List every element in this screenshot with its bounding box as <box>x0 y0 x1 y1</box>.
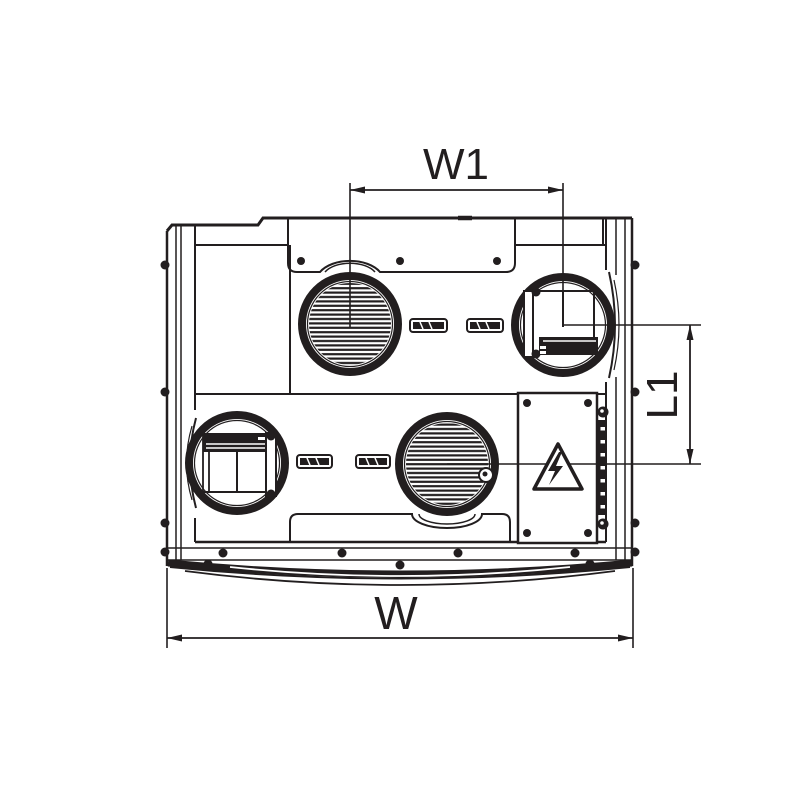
arrowhead-right <box>548 187 563 194</box>
panel-screw <box>493 257 501 265</box>
arrowhead-down <box>687 449 694 464</box>
top-vent-slots <box>410 319 503 332</box>
terminal-strip <box>598 407 609 530</box>
dimension-label-w1: W1 <box>423 140 489 189</box>
top-access-panel <box>288 218 515 272</box>
arrowhead-up <box>687 325 694 340</box>
bottom-band-screws <box>204 549 595 570</box>
panel-screw <box>396 257 404 265</box>
bottom-vent-slots <box>297 455 390 468</box>
panel-screw <box>297 257 305 265</box>
bottom-access-panel <box>290 514 510 542</box>
arrowhead-right <box>618 635 633 642</box>
dimension-w: W <box>167 568 633 648</box>
dimension-label-w: W <box>374 587 418 639</box>
ventilation-unit-drawing: W1 L1 W <box>0 0 800 800</box>
dimension-label-l1: L1 <box>638 371 687 420</box>
arrowhead-left <box>167 635 182 642</box>
bottom-left-port-damper <box>187 415 286 511</box>
technical-drawing-page: W1 L1 W <box>0 0 800 800</box>
arrowhead-left <box>350 187 365 194</box>
